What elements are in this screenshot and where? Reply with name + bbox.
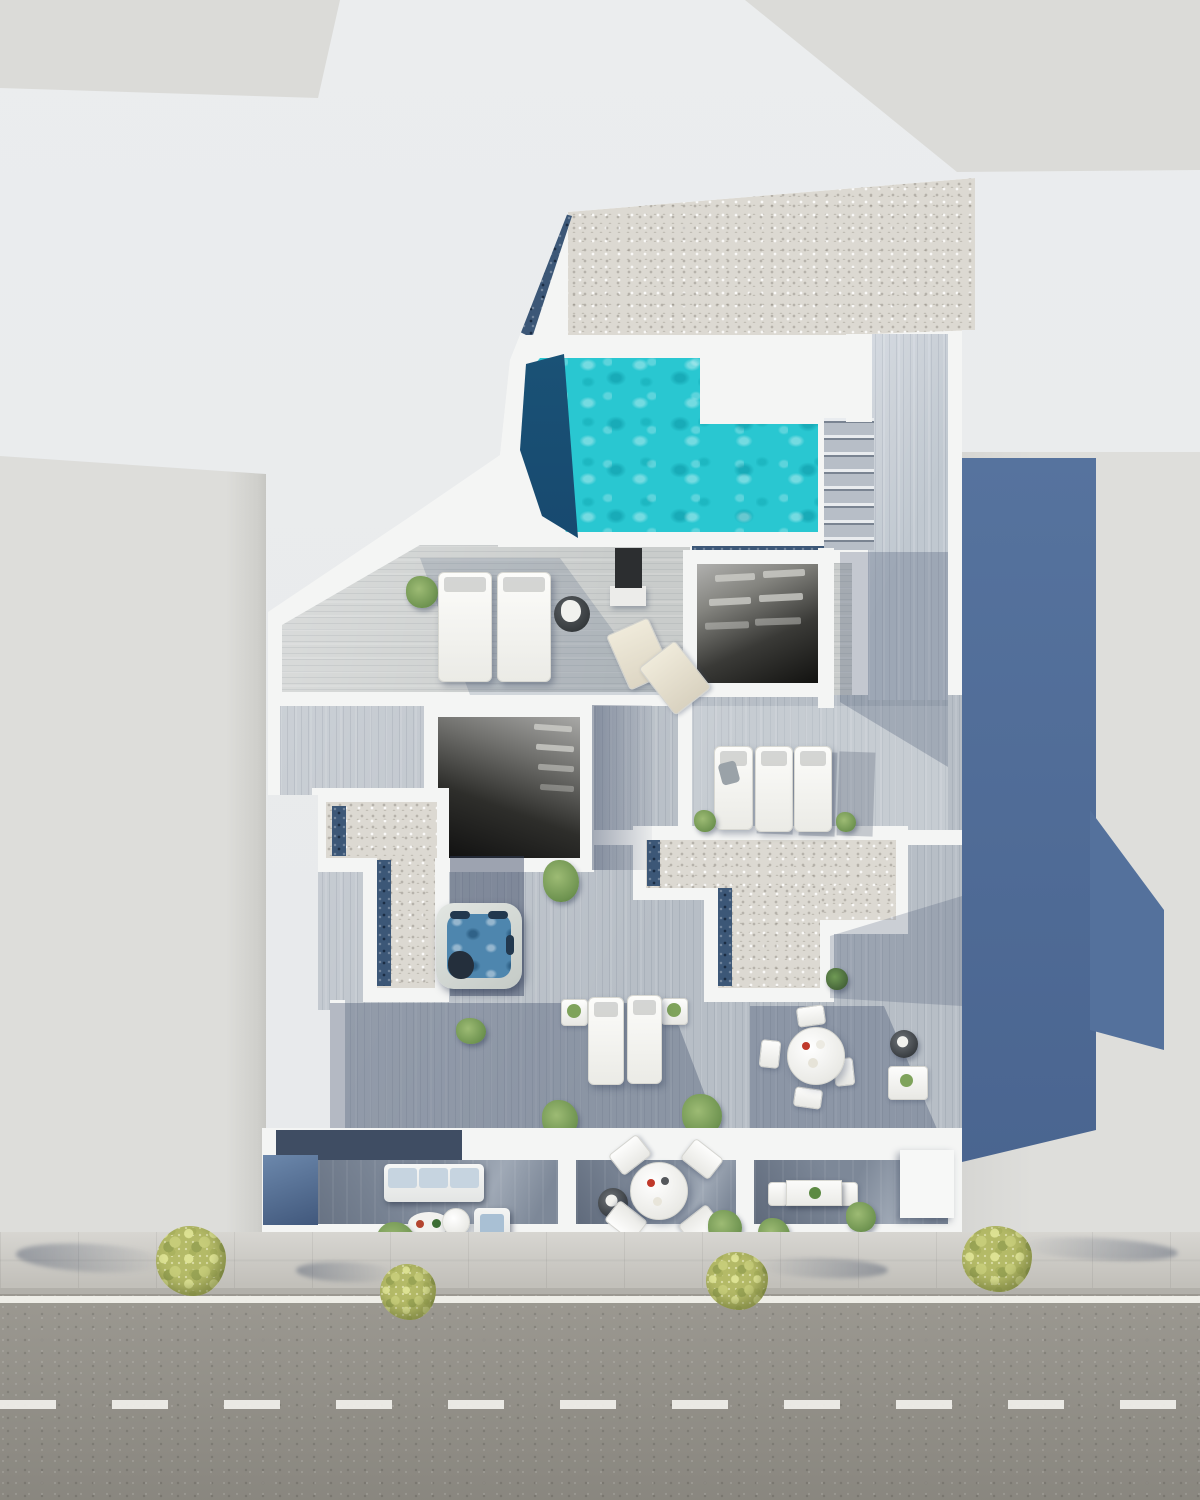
louver-slat <box>759 593 803 602</box>
gravel-edge-strip <box>332 806 346 856</box>
stairwell-opening-interior <box>438 717 580 858</box>
louver-slat <box>715 573 755 582</box>
gravel-roof-t <box>718 888 820 988</box>
sofa-cushion <box>388 1168 417 1188</box>
planter <box>826 968 848 990</box>
dining-chair <box>793 1086 824 1110</box>
sofa <box>384 1164 484 1202</box>
sofa-cushion <box>419 1168 448 1188</box>
street-edge-line <box>0 1296 1200 1303</box>
gravel-edge-strip <box>377 860 391 986</box>
gravel-edge-strip <box>718 888 732 986</box>
louver-slat <box>536 744 574 753</box>
cast-shadow <box>592 705 652 870</box>
wall <box>846 334 872 422</box>
planter <box>456 1018 486 1044</box>
side-table-round <box>442 1208 470 1236</box>
awning <box>900 1150 954 1218</box>
tableware <box>653 1197 662 1206</box>
louver-slat <box>534 724 572 733</box>
louver-slat <box>763 569 805 578</box>
sun-lounger <box>627 995 662 1084</box>
louver-slat <box>709 597 751 606</box>
sun-lounger <box>438 572 492 682</box>
street-tree <box>706 1252 768 1310</box>
table-plant <box>567 1004 581 1018</box>
tableware <box>661 1177 669 1185</box>
dining-table-round <box>630 1162 688 1220</box>
towel-in-jacuzzi <box>448 951 474 979</box>
louver-slat <box>705 621 749 630</box>
sun-lounger <box>755 746 793 832</box>
tableware <box>816 1040 825 1049</box>
planter <box>694 810 716 832</box>
planter <box>406 576 438 608</box>
street-center-dashed-line <box>0 1400 1200 1409</box>
tableware <box>647 1179 655 1187</box>
dining-table-rect <box>786 1180 842 1206</box>
table-plant <box>667 1003 681 1017</box>
bush <box>846 1202 876 1232</box>
planter <box>543 860 579 902</box>
street-tree <box>962 1226 1032 1292</box>
dining-chair <box>759 1039 782 1069</box>
sun-lounger <box>794 746 832 832</box>
jacuzzi-seat <box>506 935 514 955</box>
jacuzzi-seat <box>450 911 470 919</box>
neighbor-building-top-right <box>745 0 1200 172</box>
tableware <box>416 1220 424 1228</box>
street-tree <box>156 1226 226 1296</box>
glass-balustrade <box>263 1155 318 1225</box>
aerial-architectural-render <box>0 0 1200 1500</box>
wall <box>678 695 692 835</box>
balcony-divider-wall <box>558 1158 576 1228</box>
outdoor-screen-panel <box>610 586 646 606</box>
stairwell-opening-interior <box>697 564 818 683</box>
side-table-round <box>554 596 590 632</box>
sun-lounger <box>714 746 753 830</box>
table-plant <box>809 1187 821 1199</box>
outdoor-screen-panel-dark <box>615 548 642 588</box>
tableware <box>802 1042 810 1050</box>
dining-table-round <box>787 1027 845 1085</box>
sun-lounger <box>497 572 551 682</box>
building-shadow-on-right-neighbor <box>962 458 1096 1164</box>
street-tree <box>380 1264 436 1320</box>
gravel-roof-t <box>820 886 896 920</box>
sun-lounger <box>588 997 624 1085</box>
dining-chair <box>768 1182 788 1206</box>
tableware <box>432 1219 441 1228</box>
table-plant <box>900 1074 913 1087</box>
gravel-roof-t <box>646 840 896 888</box>
jacuzzi <box>436 903 522 989</box>
sofa-cushion <box>450 1168 479 1188</box>
flower-planter <box>890 1030 918 1058</box>
louver-slat <box>540 784 574 792</box>
street <box>0 1294 1200 1500</box>
neighbor-building-left <box>0 452 266 1232</box>
planter <box>836 812 856 832</box>
gravel-roof-edge-strip <box>512 206 576 342</box>
tableware <box>808 1058 818 1068</box>
jacuzzi-seat <box>488 911 508 919</box>
staircase <box>824 418 874 550</box>
towel <box>561 600 581 622</box>
louver-slat <box>755 617 801 626</box>
dining-chair <box>796 1004 827 1028</box>
neighbor-building-top-left <box>0 0 340 102</box>
louver-slat <box>538 764 574 772</box>
